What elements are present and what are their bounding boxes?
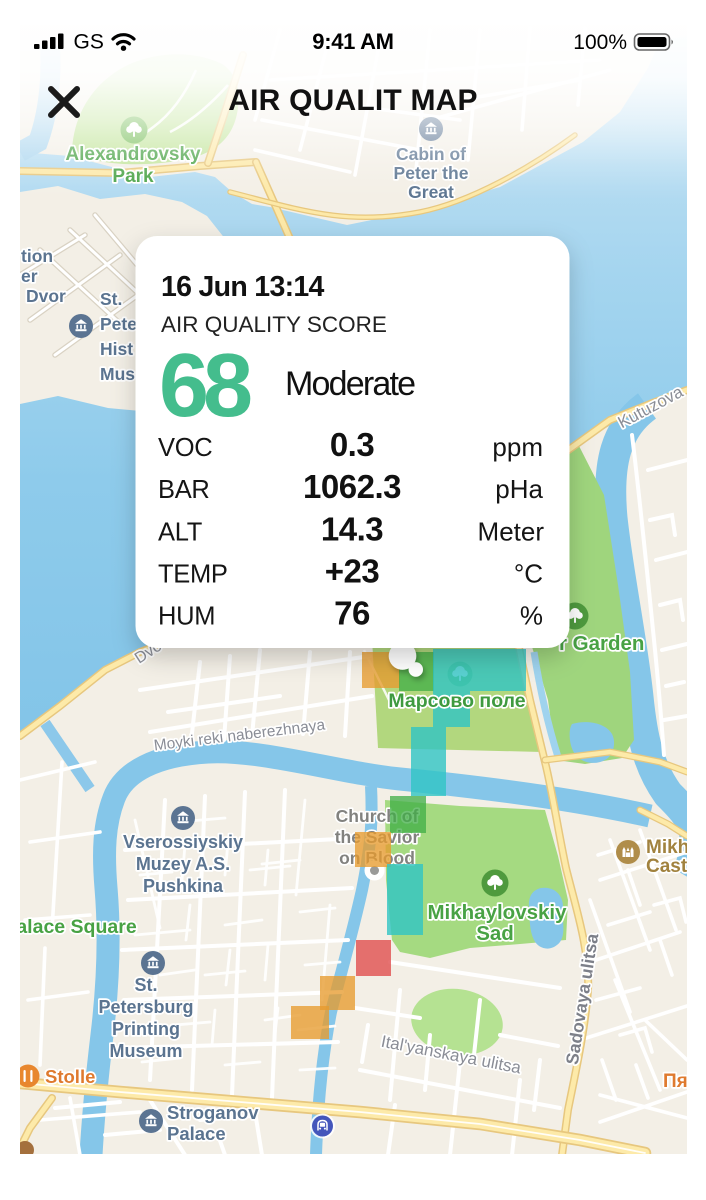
svg-text:+23: +23 [325, 553, 380, 590]
svg-text:VOC: VOC [158, 434, 212, 462]
svg-text:14.3: 14.3 [321, 511, 383, 548]
svg-text:Mus: Mus [100, 364, 135, 384]
svg-text:Petersburg: Petersburg [98, 997, 193, 1017]
svg-text:16 Jun 13:14: 16 Jun 13:14 [161, 271, 325, 303]
svg-text:Moderate: Moderate [285, 365, 415, 403]
svg-text:%: % [520, 601, 543, 631]
svg-text:Hist: Hist [100, 339, 133, 359]
svg-text:Printing: Printing [112, 1019, 180, 1039]
svg-text:Cast: Cast [646, 856, 688, 877]
svg-text:1062.3: 1062.3 [303, 468, 401, 505]
svg-text:AIR QUALITY SCORE: AIR QUALITY SCORE [161, 312, 387, 337]
svg-text:AIR QUALIT MAP: AIR QUALIT MAP [228, 84, 477, 117]
svg-text:9:41 AM: 9:41 AM [312, 29, 393, 54]
svg-text:Palace Square: Palace Square [3, 916, 136, 938]
svg-text:Stolle: Stolle [45, 1066, 95, 1087]
svg-text:Palace: Palace [167, 1123, 226, 1144]
svg-text:Mikh: Mikh [646, 837, 689, 858]
svg-text:St.: St. [134, 975, 157, 995]
svg-text:er: er [21, 266, 38, 286]
svg-text:tion: tion [21, 246, 53, 266]
svg-text:BAR: BAR [158, 476, 210, 504]
svg-text:ALT: ALT [158, 519, 202, 547]
svg-text:Pushkina: Pushkina [143, 876, 224, 896]
svg-text:ppm: ppm [492, 432, 543, 462]
svg-text:r Garden: r Garden [559, 632, 644, 655]
svg-text:GS: GS [74, 31, 104, 54]
svg-text:0.3: 0.3 [330, 426, 375, 463]
svg-text:Pete: Pete [100, 314, 137, 334]
svg-text:St.: St. [100, 289, 122, 309]
svg-text:TEMP: TEMP [158, 561, 228, 589]
svg-text:Vserossiyskiy: Vserossiyskiy [123, 832, 243, 852]
svg-text:68: 68 [159, 336, 251, 436]
svg-text:Mikhaylovskiy: Mikhaylovskiy [427, 901, 567, 924]
svg-text:Museum: Museum [109, 1041, 182, 1061]
svg-text:76: 76 [334, 595, 370, 632]
svg-text:Meter: Meter [478, 517, 545, 547]
svg-text:°C: °C [514, 559, 543, 589]
svg-text:HUM: HUM [158, 603, 215, 631]
svg-text:100%: 100% [573, 31, 627, 54]
svg-text:Sad: Sad [476, 922, 514, 945]
svg-text:Dvor: Dvor [26, 286, 66, 306]
svg-text:Stroganov: Stroganov [167, 1102, 259, 1123]
svg-text:Muzey A.S.: Muzey A.S. [136, 854, 230, 874]
svg-text:Марсово поле: Марсово поле [388, 690, 525, 712]
svg-text:pHa: pHa [495, 474, 543, 504]
svg-text:Пя: Пя [663, 1071, 688, 1092]
